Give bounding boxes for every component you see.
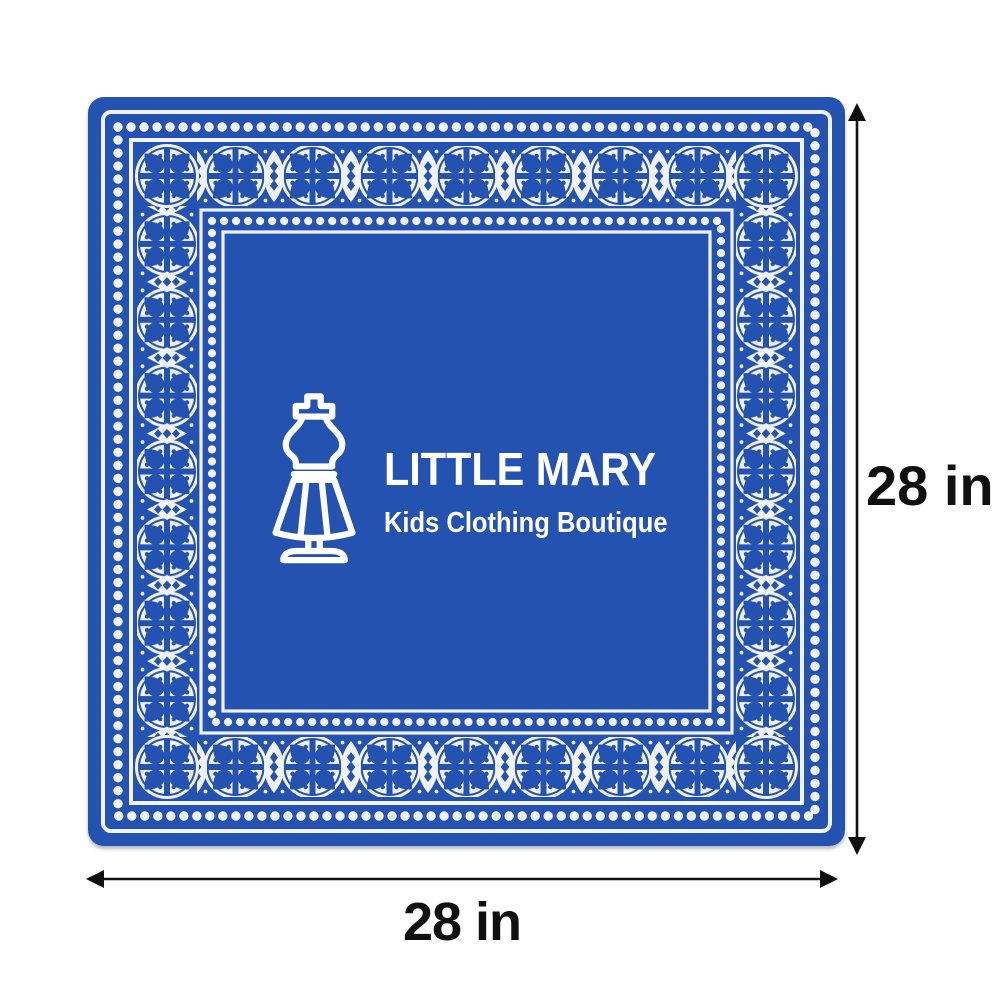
- brand-logo: LITTLE MARY Kids Clothing Boutique: [266, 390, 706, 566]
- arrowhead-down-icon: [848, 837, 866, 855]
- width-label: 28 in: [88, 891, 836, 953]
- brand-text-block: LITTLE MARY Kids Clothing Boutique: [384, 390, 706, 538]
- arrowhead-right-icon: [820, 870, 838, 888]
- width-dimension-arrow: [84, 867, 840, 891]
- arrowhead-up-icon: [848, 103, 866, 121]
- arrowhead-left-icon: [86, 870, 104, 888]
- bandana: LITTLE MARY Kids Clothing Boutique: [88, 97, 845, 846]
- dress-form-mannequin-icon: [266, 390, 362, 566]
- height-label: 28 in: [866, 453, 994, 518]
- product-mockup-canvas: LITTLE MARY Kids Clothing Boutique 28 in…: [0, 0, 1000, 1000]
- brand-tagline: Kids Clothing Boutique: [384, 509, 668, 538]
- brand-name: LITTLE MARY: [384, 446, 674, 492]
